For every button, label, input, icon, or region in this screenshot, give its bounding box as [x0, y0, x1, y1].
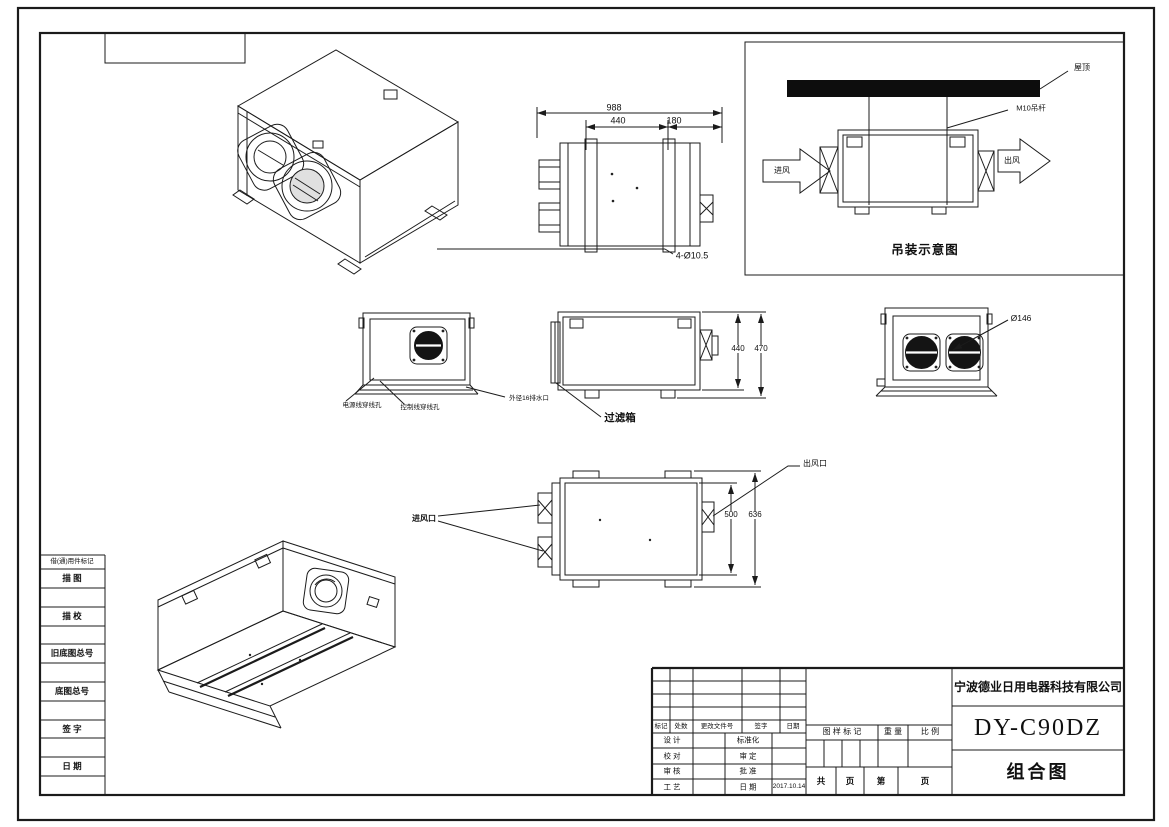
dim-overall-top: 988: [606, 104, 621, 113]
rev-header-doc-no: 更改文件号: [701, 724, 734, 731]
drawing-linework: [0, 0, 1169, 827]
front-port: [410, 327, 447, 364]
pages-index-unit: 页: [921, 777, 930, 786]
dim-end-top: 180: [666, 117, 681, 126]
drain-label: 外径16排水口: [509, 396, 549, 403]
dim-overall-side: 470: [753, 345, 768, 353]
outlet-arrow-label: 出风: [1004, 157, 1020, 165]
rev-header-sign: 签字: [755, 724, 768, 731]
control-hole-label: 控制线穿线孔: [401, 405, 440, 412]
power-hole-label: 电源线穿线孔: [343, 403, 382, 410]
dim-body-plan: 500: [723, 511, 738, 519]
drawing-name: 组合图: [1007, 763, 1070, 781]
dim-body-top: 440: [610, 117, 625, 126]
side-view: [551, 312, 766, 417]
pages-total-unit: 页: [846, 777, 855, 786]
approval-approve: 批 准: [739, 767, 756, 775]
approval-process: 工 艺: [663, 783, 680, 791]
rear-port-2: [946, 334, 983, 371]
dim-overall-plan: 636: [747, 511, 762, 519]
roof-label: 屋顶: [1074, 64, 1090, 72]
company-name: 宁波德业日用电器科技有限公司: [954, 681, 1122, 693]
pages-index-label: 第: [877, 777, 886, 786]
isometric-view-top: [233, 50, 458, 274]
inlet-arrow-label: 进风: [774, 167, 790, 175]
hanging-caption: 吊装示意图: [891, 244, 959, 257]
hole-callout: 4-Ø10.5: [676, 252, 709, 261]
dim-body-side: 440: [730, 345, 745, 353]
iso-port-2: [269, 148, 345, 224]
left-margin-row-master-no: 底图总号: [55, 687, 89, 696]
stamp-weight-label: 重 量: [884, 728, 902, 736]
left-margin-row-tracing: 描 图: [62, 574, 81, 583]
approval-design: 设 计: [663, 736, 680, 744]
rev-header-date: 日期: [787, 724, 800, 731]
isometric-view-bottom: [158, 541, 395, 728]
left-margin-row-signature: 签 字: [62, 725, 81, 734]
approval-proofread: 校 对: [663, 752, 680, 760]
left-margin-grid: [40, 555, 105, 795]
port-dia-label: Ø146: [1011, 314, 1032, 323]
rod-label: M10吊杆: [1016, 104, 1046, 112]
filter-box-label: 过滤箱: [604, 413, 636, 424]
left-margin-row-tracing-check: 描 校: [62, 612, 81, 621]
plan-view: [438, 466, 800, 587]
drawing-sheet: 988 440 180 4-Ø10.5 屋顶 M10吊杆 进风 出风 吊装示意图…: [0, 0, 1169, 827]
approval-date-value: 2017.10.14: [773, 784, 806, 791]
model-number: DY-C90DZ: [974, 716, 1102, 740]
left-margin-row-borrowed-mark: 借(通)用件标记: [50, 559, 93, 566]
rev-header-mark: 标记: [655, 724, 668, 731]
front-end-view: [346, 313, 505, 404]
plan-inlet-label: 进风口: [412, 515, 436, 523]
rev-header-count: 处数: [675, 724, 688, 731]
approval-standardization: 标准化: [737, 736, 760, 744]
stamp-mark-label: 图 样 标 记: [823, 728, 862, 736]
rear-end-view: [876, 308, 1008, 396]
approval-examine: 审 定: [739, 752, 756, 760]
iso-bottom-port: [302, 567, 349, 614]
roof-bar: [787, 80, 1040, 97]
left-margin-row-old-master-no: 旧底图总号: [51, 649, 94, 658]
hanging-installation-diagram: [745, 42, 1124, 275]
stamp-scale-label: 比 例: [921, 728, 939, 736]
left-margin-row-date: 日 期: [62, 762, 81, 771]
top-view: [437, 107, 722, 254]
rear-port-1: [903, 334, 940, 371]
approval-date-label: 日 期: [739, 783, 756, 791]
pages-total-label: 共: [817, 777, 826, 786]
plan-outlet-label: 出风口: [803, 460, 827, 468]
approval-review: 审 核: [663, 767, 680, 775]
